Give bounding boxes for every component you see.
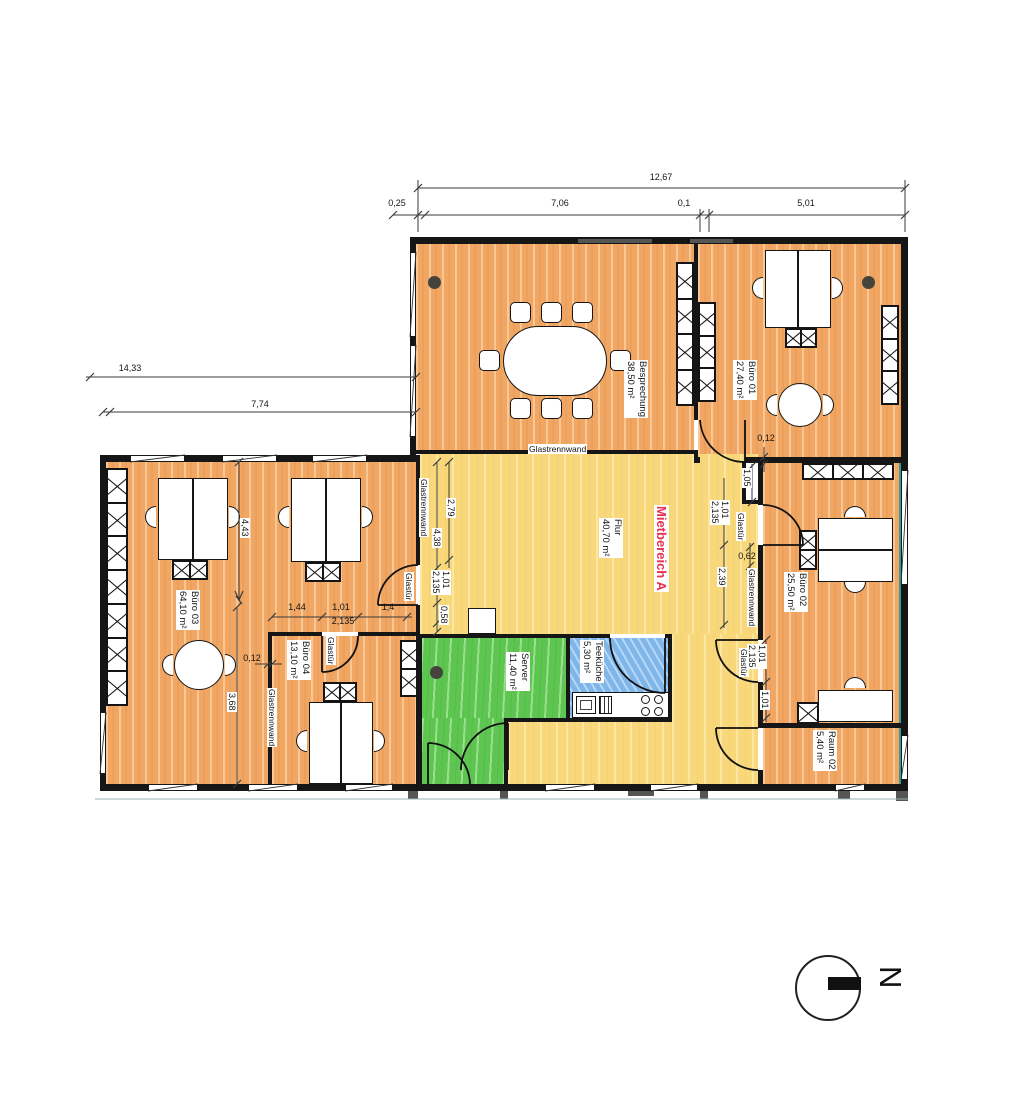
x-cell <box>803 464 833 479</box>
x-cell <box>800 531 816 550</box>
wall-buero04-server <box>416 636 422 784</box>
x-cell <box>401 641 417 669</box>
dim-b02: 0,62 <box>738 551 756 561</box>
chair <box>479 350 500 371</box>
x-cell <box>107 604 127 638</box>
dim-wall-thickness: 0,12 <box>757 433 775 443</box>
wall-besprechung-buero01 <box>694 244 698 420</box>
dim-top-seg: 7,06 <box>551 198 569 208</box>
column <box>428 276 441 289</box>
glass-door-label: Glastür <box>326 636 336 665</box>
window <box>650 784 698 791</box>
x-cell <box>190 561 207 579</box>
desk <box>798 250 831 328</box>
rollcontainer <box>172 560 208 580</box>
window <box>130 455 185 462</box>
room-label-raum02: Raum 025,40 m² <box>813 730 837 771</box>
x-cell <box>677 299 693 335</box>
room-flur-notch <box>508 722 566 784</box>
chair <box>572 302 593 323</box>
desk <box>765 250 798 328</box>
glass-wall-label: Glastrennwand <box>528 444 587 454</box>
round-table <box>174 640 224 690</box>
kitchen-sink <box>576 696 596 714</box>
x-cell <box>340 683 356 701</box>
stove-burner <box>654 707 663 716</box>
room-label-buero01: Büro 0127,40 m² <box>733 360 757 400</box>
cutoff-stub <box>838 791 850 799</box>
stove-burner <box>654 695 663 704</box>
chair <box>572 398 593 419</box>
dim-wall-thickness: 0,12 <box>243 653 261 663</box>
desk <box>158 478 193 560</box>
x-cell <box>798 703 818 723</box>
wall-buero02-raum02 <box>763 723 908 728</box>
glass-wall-label: Glastrennwand <box>747 568 757 627</box>
dim-niche: 1,05 <box>742 468 752 488</box>
x-cell <box>699 336 715 369</box>
wall-buero01-south <box>694 457 700 463</box>
dim-leftblock: 3,68 <box>227 692 237 712</box>
radiator-strip <box>106 468 128 706</box>
rollcontainer <box>323 682 357 702</box>
wall-bottom <box>100 784 908 791</box>
desk <box>291 478 326 562</box>
x-cell <box>699 368 715 401</box>
dim-flur-west: 2,79 <box>446 498 456 518</box>
x-cell <box>107 536 127 570</box>
x-cell <box>699 303 715 336</box>
chair <box>510 302 531 323</box>
dim-b02: 1,01 <box>760 690 770 710</box>
x-cell <box>107 570 127 604</box>
desk <box>309 702 341 784</box>
wall-niche <box>742 500 763 504</box>
dim-chain: 2,135 <box>332 616 355 626</box>
wall-buero01-south <box>745 457 908 463</box>
dim-chain: 1,01 <box>332 602 350 612</box>
room-server <box>422 638 566 718</box>
x-cell <box>801 329 816 347</box>
wall-top <box>410 237 908 244</box>
room-label-flur: Flur40,70 m² <box>599 518 623 558</box>
dim-door-pair: 1,012,135 <box>431 570 451 595</box>
window <box>901 470 908 585</box>
window <box>345 784 393 791</box>
glass-wall-label: Glastrennwand <box>267 688 277 747</box>
dim-flur-east: 2,39 <box>717 567 727 587</box>
floor-plan-canvas: 12,67 0,25 7,06 0,1 5,01 14,33 7,74 2,79… <box>0 0 1020 1102</box>
window <box>410 345 416 437</box>
dim-top-seg: 5,01 <box>797 198 815 208</box>
wall-top-recess <box>690 239 733 243</box>
conference-table <box>503 326 607 396</box>
desk <box>326 478 361 562</box>
x-cell <box>401 669 417 697</box>
wall-server-east <box>566 634 570 722</box>
x-cell <box>786 329 801 347</box>
x-cell <box>800 550 816 569</box>
wall-teekueche-top <box>570 634 610 638</box>
window <box>410 252 416 337</box>
x-cell <box>173 561 190 579</box>
x-cell <box>882 339 898 372</box>
north-arrow-bar <box>828 977 861 990</box>
wall-buero03-buero04 <box>358 632 416 636</box>
cutoff-stub <box>408 791 418 799</box>
north-label: N <box>872 966 908 988</box>
wall-server-step-v <box>504 718 508 784</box>
window <box>901 735 908 780</box>
x-cell <box>107 503 127 537</box>
radiator-strip <box>802 463 894 480</box>
x-cell <box>677 370 693 406</box>
dim-door-pair: 1,012,135 <box>710 500 730 525</box>
x-cell <box>677 334 693 370</box>
sink-drainer <box>599 696 612 714</box>
column <box>430 666 443 679</box>
room-label-besprechung: Besprechung38,50 m² <box>624 360 648 418</box>
desk <box>193 478 228 560</box>
x-cell <box>306 563 323 581</box>
x-cell <box>107 671 127 705</box>
dim-left: 7,74 <box>251 399 269 409</box>
dim-left: 14,33 <box>119 363 142 373</box>
window <box>835 784 865 791</box>
dim-top-seg: 0,25 <box>388 198 406 208</box>
wall-buero03-buero04 <box>272 632 322 636</box>
dim-flur-west: 0,58 <box>439 605 449 625</box>
rollcontainer <box>785 328 817 348</box>
wall-server-top <box>420 634 570 638</box>
window <box>545 784 595 791</box>
x-cell <box>833 464 863 479</box>
rollcontainer <box>305 562 341 582</box>
wall-flur-east <box>758 462 763 505</box>
room-buero03 <box>106 462 416 632</box>
wall-top-recess <box>578 239 652 243</box>
x-cell <box>323 563 340 581</box>
dim-total-width: 12,67 <box>650 172 673 182</box>
glass-wall-flur-west <box>416 605 420 636</box>
cutoff-stub <box>628 791 654 796</box>
glass-door-label: Glastür <box>736 512 746 541</box>
wall-server-step-h <box>504 718 570 722</box>
wall-flur-east <box>758 545 763 640</box>
window <box>100 712 106 774</box>
round-table <box>778 383 822 427</box>
chair <box>510 398 531 419</box>
room-label-buero03: Büro 0364,10 m² <box>176 590 200 630</box>
cutoff-stub <box>700 791 708 799</box>
x-cell <box>107 638 127 672</box>
x-cell <box>107 469 127 503</box>
desk <box>341 702 373 784</box>
rollcontainer <box>797 702 819 724</box>
glass-door-label: Glastür <box>739 648 749 677</box>
chair <box>541 398 562 419</box>
zone-label-mietbereich-a: Mietbereich A <box>654 505 669 592</box>
dim-flur-west: 4,38 <box>432 528 442 548</box>
room-flur-south <box>566 722 672 784</box>
room-label-server: Server11,40 m² <box>506 652 530 691</box>
room-label-buero02: Büro 0225,50 m² <box>784 572 808 612</box>
cutoff-stub <box>500 791 508 799</box>
glass-wall-label: Glastrennwand <box>419 478 429 537</box>
radiator-strip <box>676 262 694 406</box>
room-server-lower <box>422 718 504 784</box>
x-cell <box>677 263 693 299</box>
wall-teekueche-east <box>668 634 672 722</box>
chair <box>541 302 562 323</box>
window <box>312 455 367 462</box>
rollcontainer <box>799 530 817 570</box>
room-flur <box>420 454 758 634</box>
stove-burner <box>641 695 650 704</box>
window <box>222 455 277 462</box>
x-cell <box>882 306 898 339</box>
cutoff-stub <box>896 791 908 801</box>
radiator-strip <box>698 302 716 402</box>
room-label-teekueche: Teeküche5,30 m² <box>580 640 604 683</box>
window <box>148 784 198 791</box>
shaft-box <box>468 608 496 634</box>
desk <box>818 690 893 722</box>
wall-flur-east <box>758 770 763 786</box>
column <box>862 276 875 289</box>
room-label-buero04: Büro 0413,10 m² <box>287 640 311 680</box>
radiator-strip <box>881 305 899 405</box>
x-cell <box>863 464 893 479</box>
glass-door-label: Glastür <box>404 572 414 601</box>
dim-door-pair: 1,012,135 <box>747 644 767 669</box>
wall-teekueche-bottom <box>566 718 672 722</box>
stove-burner <box>641 707 650 716</box>
x-cell <box>324 683 340 701</box>
window <box>248 784 298 791</box>
dim-leftblock: 4,43 <box>240 518 250 538</box>
dim-chain: 1,4 <box>382 602 395 612</box>
x-cell <box>882 371 898 404</box>
dim-chain: 1,44 <box>288 602 306 612</box>
desk <box>818 518 893 550</box>
dim-top-seg: 0,1 <box>678 198 691 208</box>
desk <box>818 550 893 582</box>
